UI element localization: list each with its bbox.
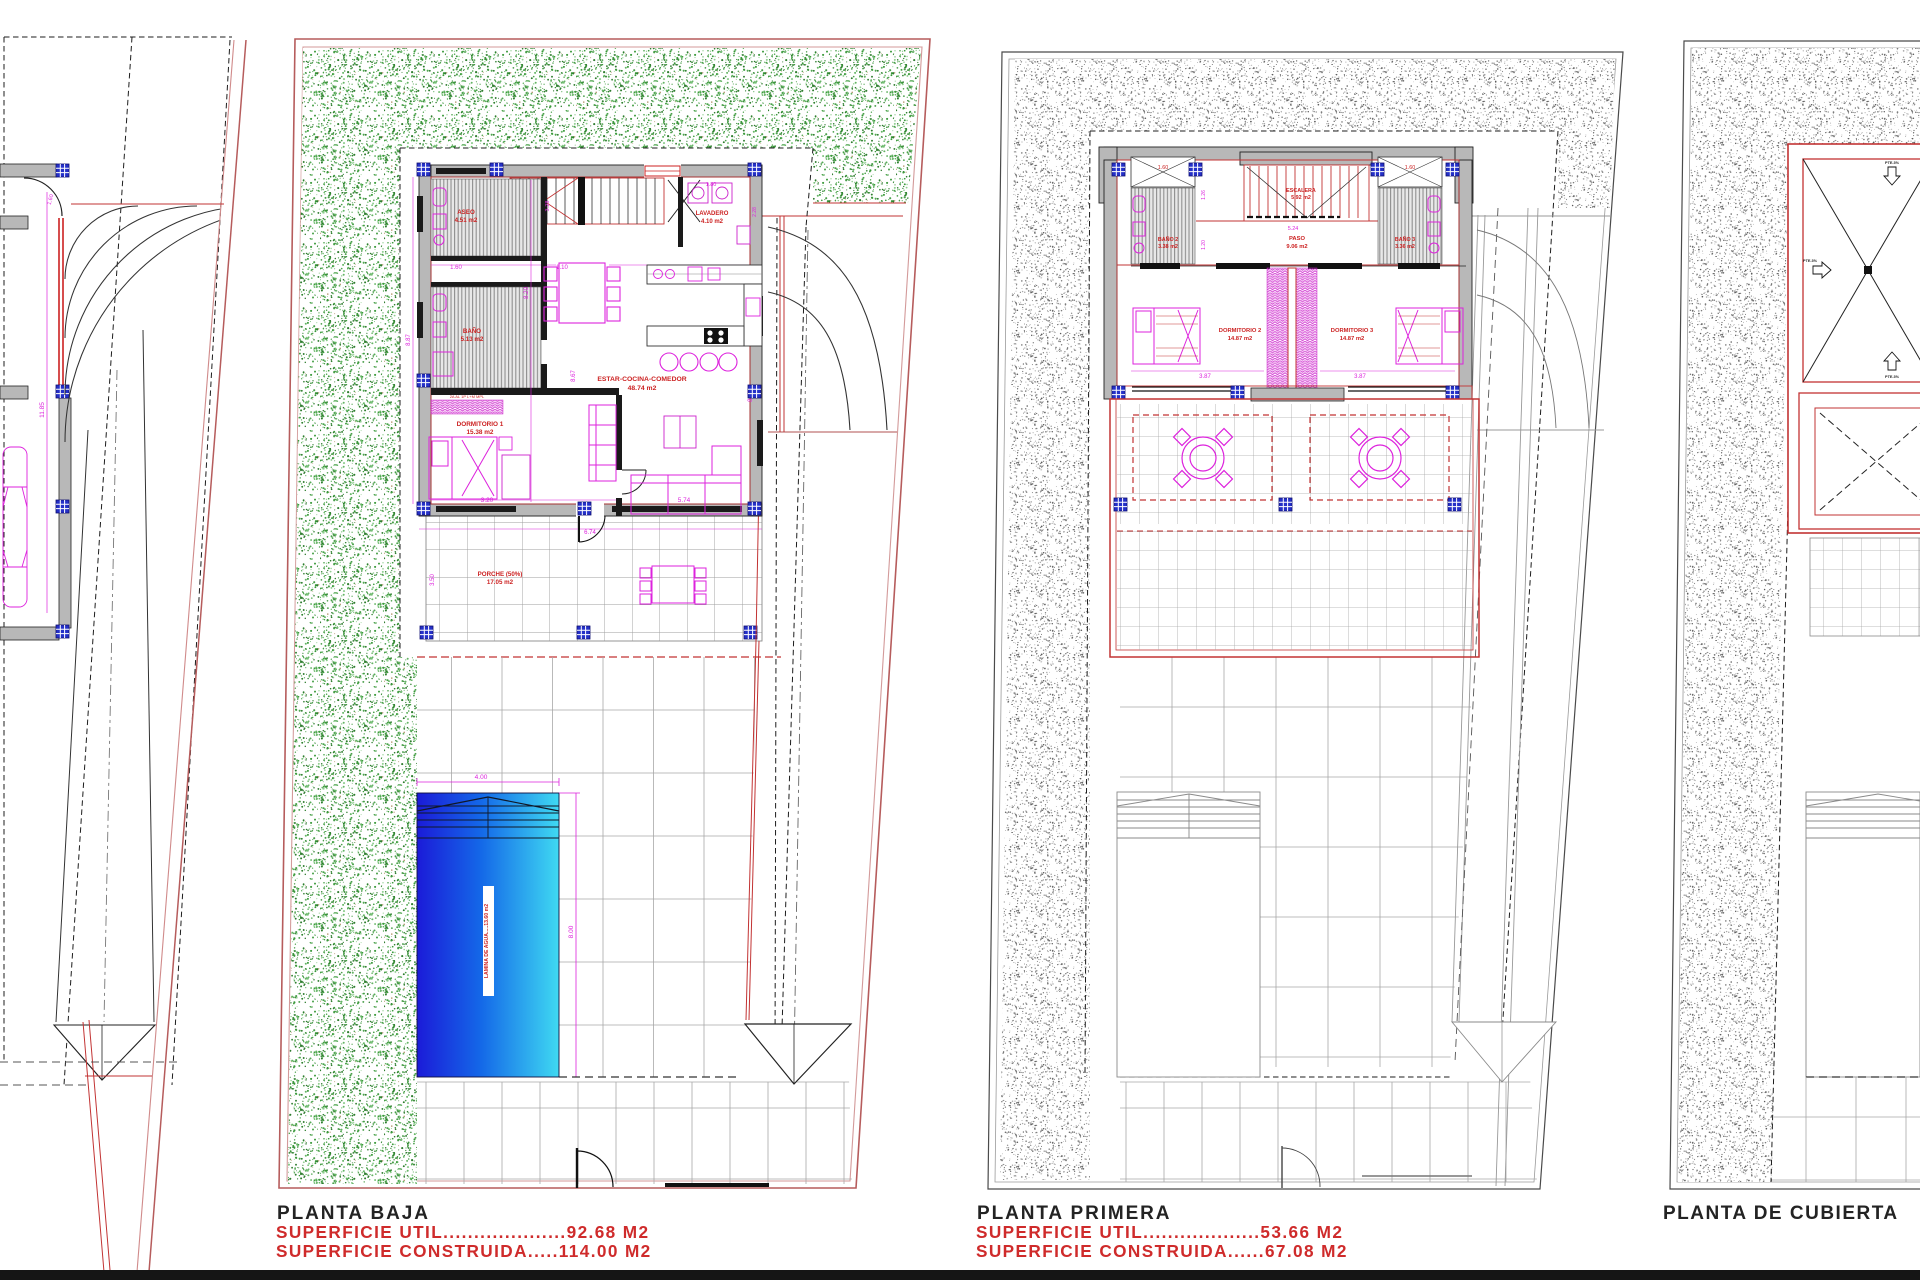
svg-text:BAÑO 3: BAÑO 3 [1395, 236, 1415, 243]
svg-text:DORMITORIO 1: DORMITORIO 1 [457, 421, 504, 428]
svg-text:SUPERFICIE CONSTRUIDA.....114.: SUPERFICIE CONSTRUIDA.....114.00 M2 [276, 1241, 652, 1261]
svg-text:14.87 m2: 14.87 m2 [1228, 336, 1253, 342]
svg-text:PORCHE (50%): PORCHE (50%) [478, 571, 523, 578]
svg-text:8.67: 8.67 [571, 370, 577, 382]
svg-text:8.00: 8.00 [568, 925, 575, 938]
svg-text:9.06 m2: 9.06 m2 [1286, 244, 1307, 250]
svg-text:BAÑO: BAÑO [463, 328, 481, 335]
svg-text:PLANTA BAJA: PLANTA BAJA [277, 1203, 430, 1224]
svg-text:11.85: 11.85 [39, 402, 46, 418]
svg-text:BAÑO 2: BAÑO 2 [1158, 236, 1178, 243]
svg-text:DORMITORIO 3: DORMITORIO 3 [1331, 328, 1374, 334]
svg-text:1.60: 1.60 [1405, 165, 1416, 171]
svg-text:LAVADERO: LAVADERO [696, 211, 729, 217]
svg-text:PTE.3%: PTE.3% [1803, 259, 1818, 263]
svg-text:3.87: 3.87 [1354, 374, 1366, 380]
svg-text:4.00: 4.00 [475, 774, 488, 781]
svg-text:2.28: 2.28 [752, 207, 758, 217]
svg-text:PTE.3%: PTE.3% [1885, 375, 1900, 379]
svg-text:5.92 m2: 5.92 m2 [1291, 195, 1311, 201]
svg-text:15.38 m2: 15.38 m2 [466, 429, 493, 436]
svg-text:ESTAR-COCINA-COMEDOR: ESTAR-COCINA-COMEDOR [597, 376, 686, 383]
svg-text:4.51 m2: 4.51 m2 [455, 217, 478, 224]
svg-text:4.10 m2: 4.10 m2 [701, 219, 724, 225]
svg-text:1.10: 1.10 [556, 265, 568, 271]
svg-text:SUPERFICIE UTIL...............: SUPERFICIE UTIL...................53.66 … [976, 1222, 1343, 1242]
svg-text:17.05 m2: 17.05 m2 [487, 579, 514, 586]
svg-text:DORMITORIO 2: DORMITORIO 2 [1219, 328, 1261, 334]
svg-text:3.50: 3.50 [430, 574, 436, 586]
svg-text:8.87: 8.87 [406, 334, 412, 346]
svg-text:3.87: 3.87 [1199, 374, 1211, 380]
svg-text:3.36 m2: 3.36 m2 [1395, 244, 1415, 250]
svg-text:PASO: PASO [1289, 236, 1305, 242]
svg-text:LAMINA DE AGUA.....13.60 m2: LAMINA DE AGUA.....13.60 m2 [484, 904, 490, 978]
svg-text:1.20: 1.20 [1201, 240, 1207, 250]
svg-text:3.28: 3.28 [545, 201, 551, 212]
svg-text:3.38 m2: 3.38 m2 [1158, 244, 1178, 250]
svg-text:PLANTA PRIMERA: PLANTA PRIMERA [977, 1203, 1171, 1224]
svg-text:1.80: 1.80 [706, 182, 717, 188]
svg-text:6.74: 6.74 [584, 530, 596, 536]
svg-text:ASEO: ASEO [457, 209, 475, 216]
svg-text:8.20: 8.20 [523, 286, 530, 299]
svg-text:5.74: 5.74 [678, 497, 691, 504]
svg-text:PTE.3%: PTE.3% [1885, 161, 1900, 165]
svg-text:PLANTA DE CUBIERTA: PLANTA DE CUBIERTA [1663, 1203, 1899, 1224]
svg-text:1.26: 1.26 [1201, 190, 1207, 200]
svg-text:SUPERFICIE UTIL...............: SUPERFICIE UTIL....................92.68… [276, 1222, 649, 1242]
svg-text:5.13 m2: 5.13 m2 [461, 336, 484, 343]
svg-text:5.24: 5.24 [1288, 226, 1299, 232]
svg-text:14.87 m2: 14.87 m2 [1340, 336, 1365, 342]
svg-text:1.60: 1.60 [450, 265, 462, 271]
svg-text:1.60: 1.60 [1158, 165, 1169, 171]
svg-text:3.20: 3.20 [481, 497, 494, 504]
svg-text:48.74 m2: 48.74 m2 [628, 385, 657, 392]
svg-text:SUPERFICIE CONSTRUIDA......67.: SUPERFICIE CONSTRUIDA......67.08 M2 [976, 1241, 1348, 1261]
svg-text:ESCALERA: ESCALERA [1286, 188, 1316, 194]
